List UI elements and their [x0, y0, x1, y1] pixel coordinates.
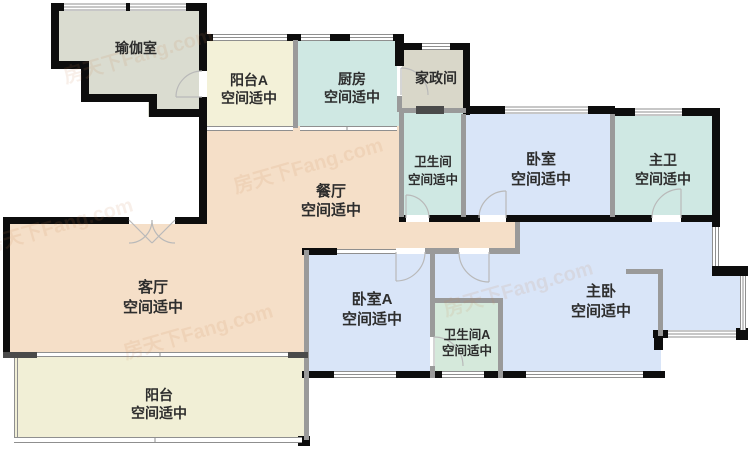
- window-alcove-right: [740, 276, 746, 330]
- window-alcove-bottom: [668, 330, 736, 338]
- window-bathroom-a-bottom: [442, 371, 484, 378]
- label-master-bath-subtitle: 空间适中: [635, 171, 691, 187]
- window-yoga-2: [130, 3, 186, 11]
- label-master-bedroom-subtitle: 空间适中: [571, 302, 631, 320]
- entry-door-block: [416, 106, 444, 114]
- label-master-bedroom: 主卧: [586, 282, 616, 300]
- label-kitchen-subtitle: 空间适中: [324, 89, 380, 105]
- label-living: 客厅: [137, 278, 168, 296]
- label-balcony-a-subtitle: 空间适中: [221, 90, 277, 106]
- label-laundry: 家政间: [415, 70, 457, 86]
- label-kitchen: 厨房: [338, 71, 366, 87]
- kitchen-bottom-opening: [300, 126, 397, 131]
- label-balcony: 阳台: [145, 387, 173, 403]
- window-master-right: [712, 227, 719, 266]
- label-master-bath: 主卫: [649, 152, 677, 168]
- label-yoga: 瑜伽室: [115, 40, 157, 56]
- floor-plan-page: 房天下Fang.com 房天下Fang.com 房天下Fang.com 房天下F…: [0, 0, 748, 450]
- balcony-a-bottom-opening: [207, 126, 293, 131]
- label-bathroom: 卫生间: [414, 154, 452, 169]
- window-bedroom: [505, 106, 588, 114]
- window-master-bottom: [526, 371, 643, 378]
- window-kitchen-2: [350, 34, 393, 41]
- label-balcony-a: 阳台A: [230, 72, 268, 88]
- window-balcony-a: [213, 34, 287, 41]
- label-bathroom-subtitle: 空间适中: [408, 172, 458, 187]
- window-yoga-1: [64, 3, 126, 11]
- label-bathroom-a-subtitle: 空间适中: [442, 343, 492, 358]
- label-dining-subtitle: 空间适中: [301, 201, 361, 219]
- label-bedroom: 卧室: [526, 150, 556, 168]
- label-bathroom-a: 卫生间A: [444, 327, 491, 342]
- floor-plan: 房天下Fang.com 房天下Fang.com 房天下Fang.com 房天下F…: [0, 0, 748, 450]
- label-bedroom-subtitle: 空间适中: [511, 170, 571, 188]
- bedroom-a-top-window: [337, 249, 396, 254]
- label-living-subtitle: 空间适中: [123, 298, 183, 316]
- label-bedroom-a: 卧室A: [352, 290, 393, 308]
- window-kitchen-1: [301, 34, 330, 41]
- window-master-bath: [635, 108, 682, 116]
- label-dining: 餐厅: [316, 182, 346, 200]
- window-laundry: [422, 43, 450, 50]
- balcony-railing: [14, 437, 302, 443]
- window-bedroom-a-bottom: [334, 371, 396, 378]
- label-bedroom-a-subtitle: 空间适中: [342, 310, 402, 328]
- label-balcony-subtitle: 空间适中: [131, 405, 187, 421]
